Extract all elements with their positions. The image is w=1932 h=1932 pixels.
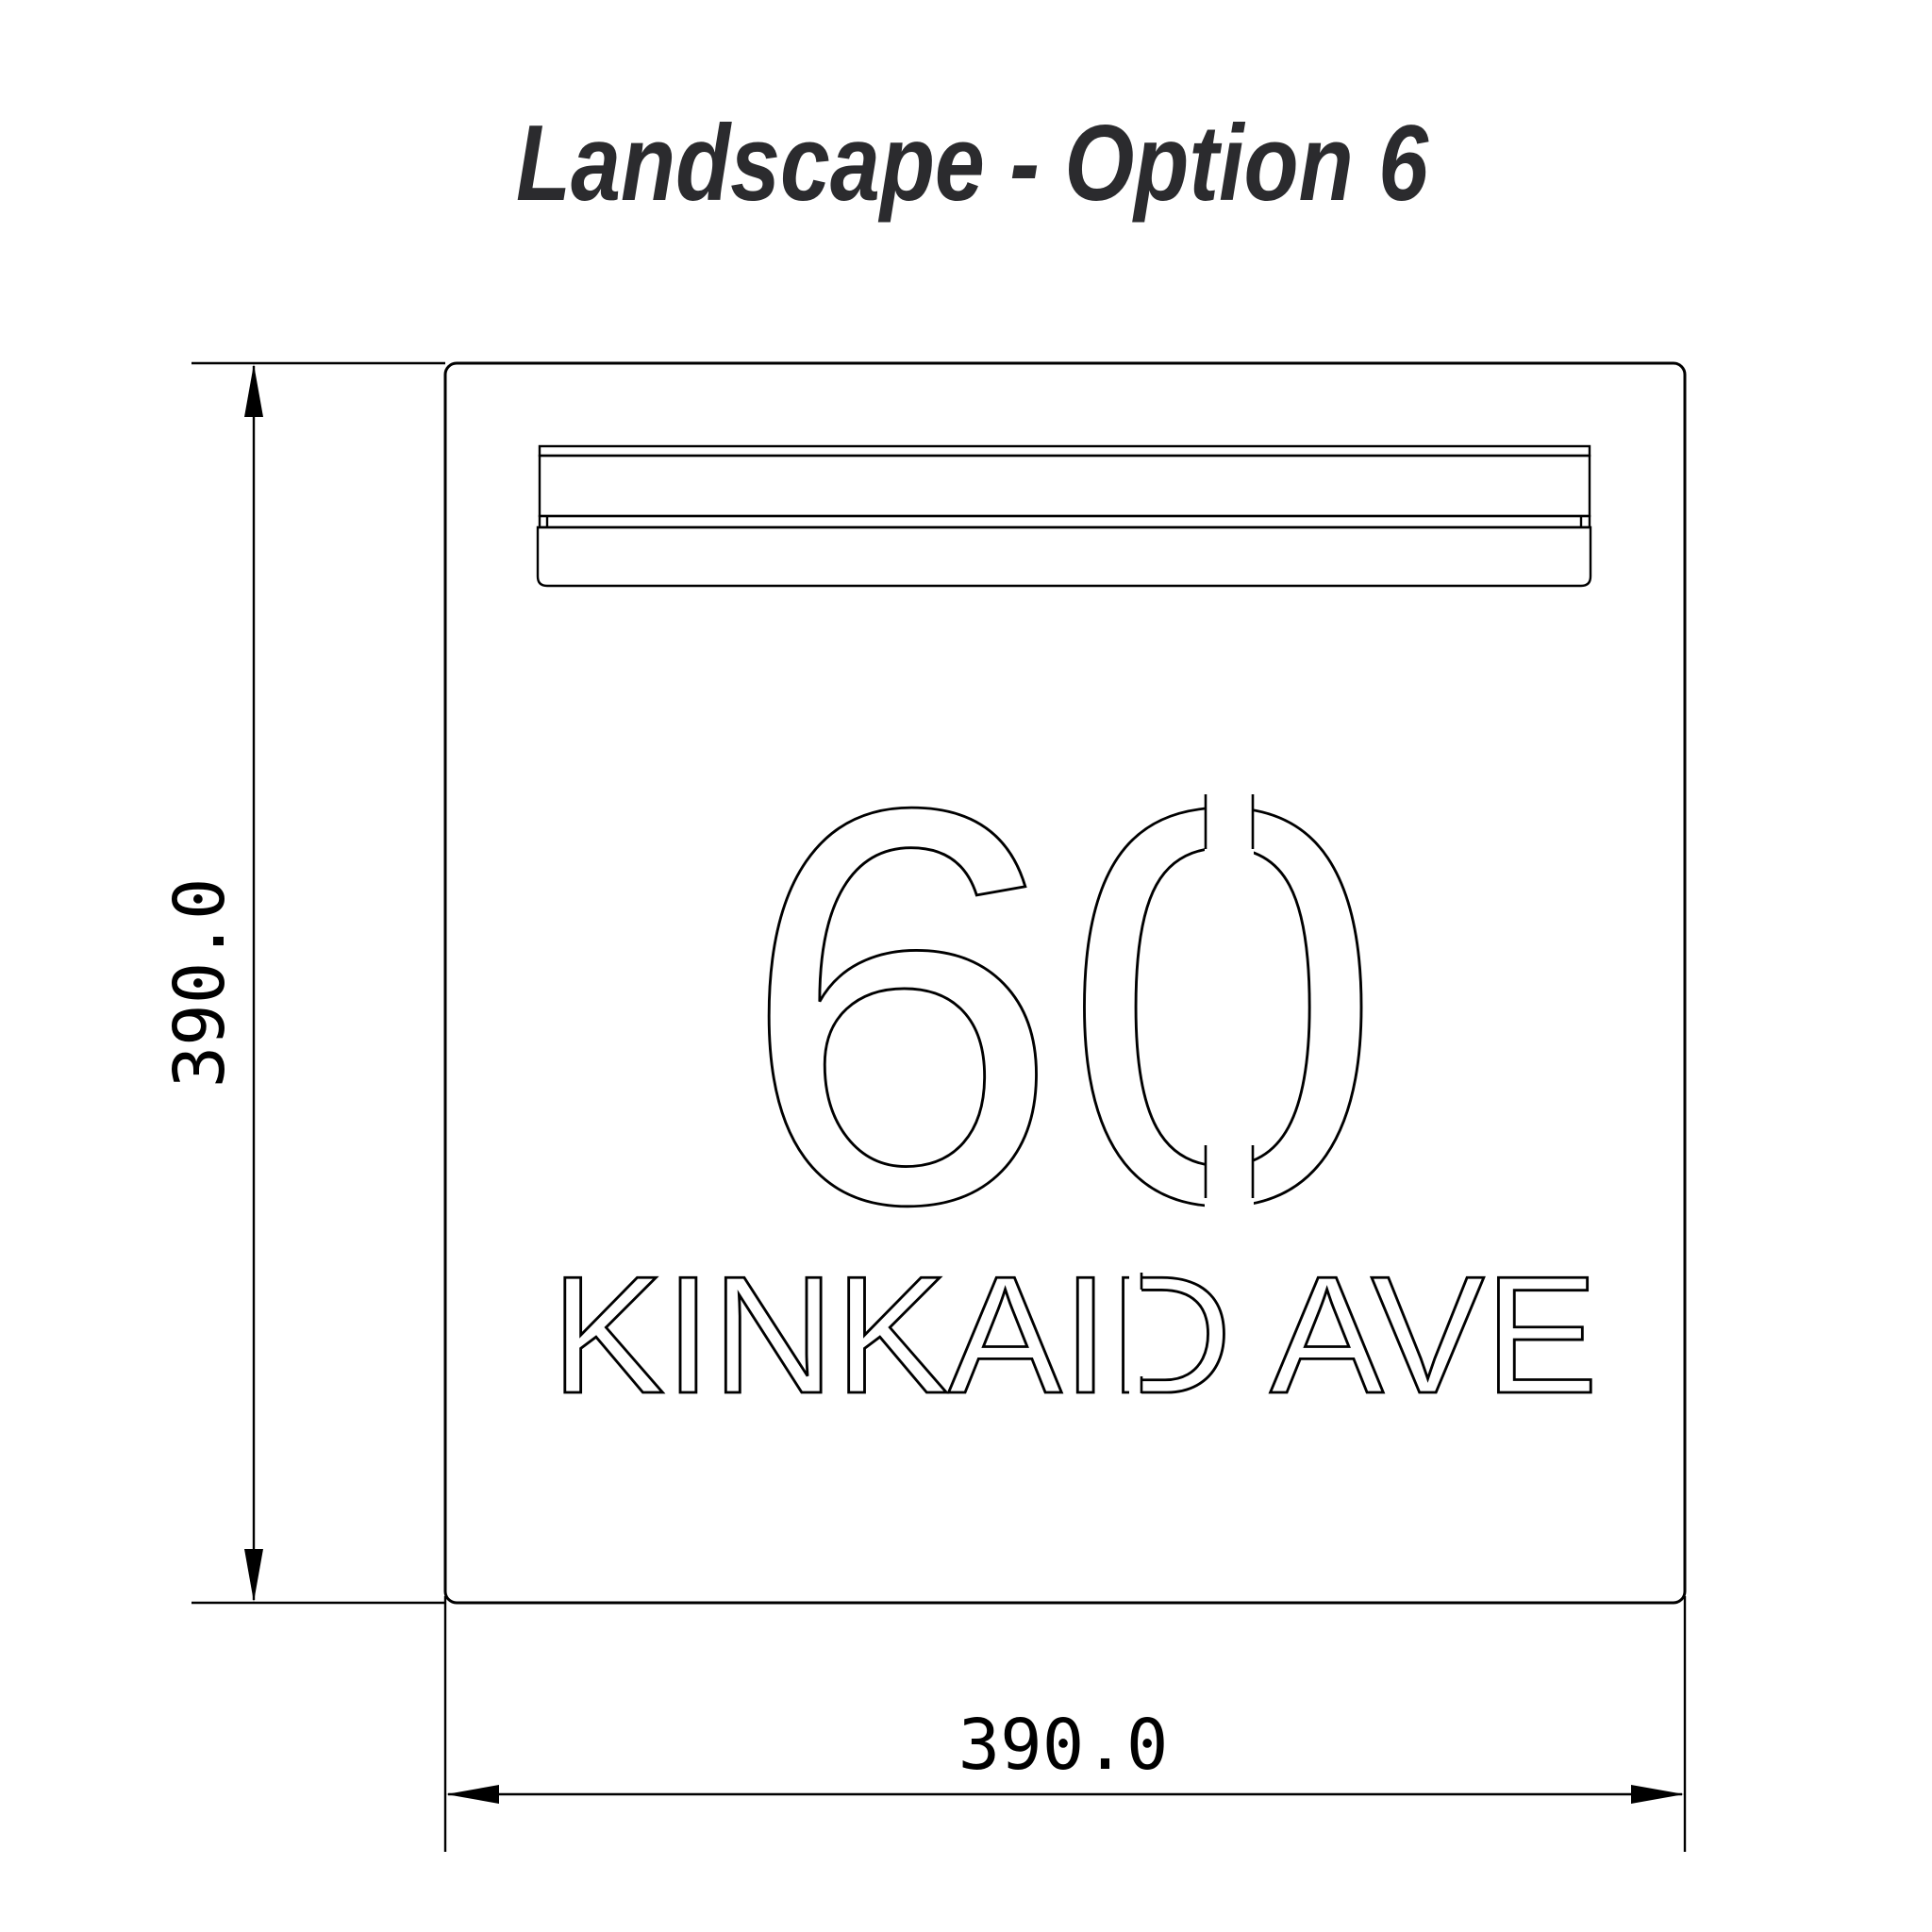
address-number-stencil: 60	[740, 691, 1384, 1321]
street-name-stencil: KINKAID AVE	[551, 1241, 1598, 1428]
letter-d-stencil-gap	[1129, 1269, 1141, 1399]
street-name-text: KINKAID AVE	[551, 1241, 1598, 1428]
zero-stencil-top-gap	[1205, 783, 1254, 889]
page: { "title": "Landscape - Option 6", "sign…	[0, 0, 1932, 1932]
technical-drawing: Landscape - Option 6 60 KINKAID AVE	[0, 0, 1932, 1932]
height-dimension-label: 390.0	[159, 878, 241, 1089]
zero-top-gap-eraser	[1205, 783, 1254, 889]
zero-bottom-gap-eraser	[1205, 1123, 1254, 1217]
width-dimension-label: 390.0	[958, 1705, 1169, 1786]
zero-stencil-bottom-gap	[1205, 1123, 1254, 1217]
drawing-title: Landscape - Option 6	[516, 104, 1429, 224]
address-number-text: 60	[740, 691, 1384, 1321]
letter-d-gap-eraser	[1129, 1269, 1141, 1399]
